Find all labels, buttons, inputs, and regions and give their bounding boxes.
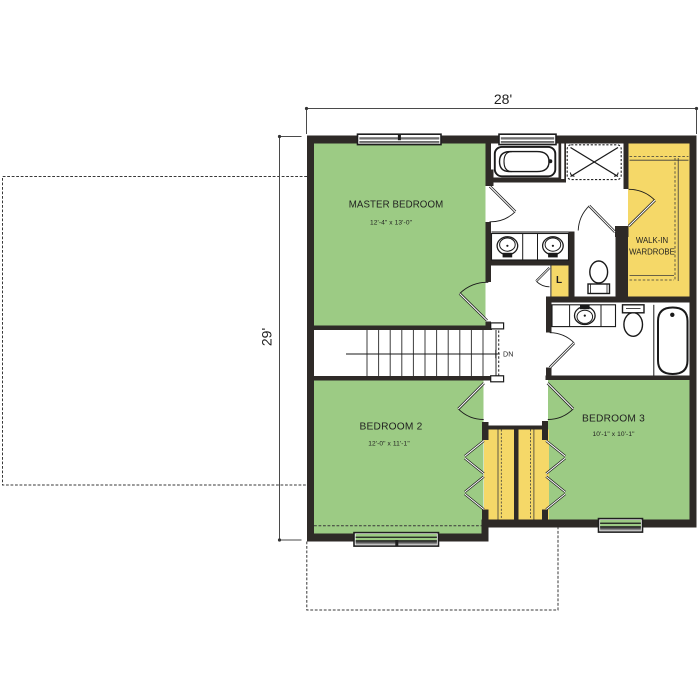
svg-text:MASTER BEDROOM: MASTER BEDROOM: [349, 200, 444, 211]
svg-text:28': 28': [494, 91, 512, 107]
svg-text:WALK-IN: WALK-IN: [636, 236, 668, 245]
svg-text:29': 29': [259, 328, 275, 346]
svg-text:12'-0" x 11'-1": 12'-0" x 11'-1": [368, 441, 410, 448]
svg-text:12'-4" x 13'-0": 12'-4" x 13'-0": [370, 220, 413, 227]
svg-text:DN: DN: [503, 350, 513, 359]
svg-text:L: L: [556, 275, 562, 286]
svg-text:10'-1" x 10'-1": 10'-1" x 10'-1": [592, 431, 635, 438]
svg-text:WARDROBE: WARDROBE: [629, 248, 675, 257]
svg-text:BEDROOM 3: BEDROOM 3: [582, 414, 645, 425]
svg-text:BEDROOM 2: BEDROOM 2: [360, 422, 423, 433]
